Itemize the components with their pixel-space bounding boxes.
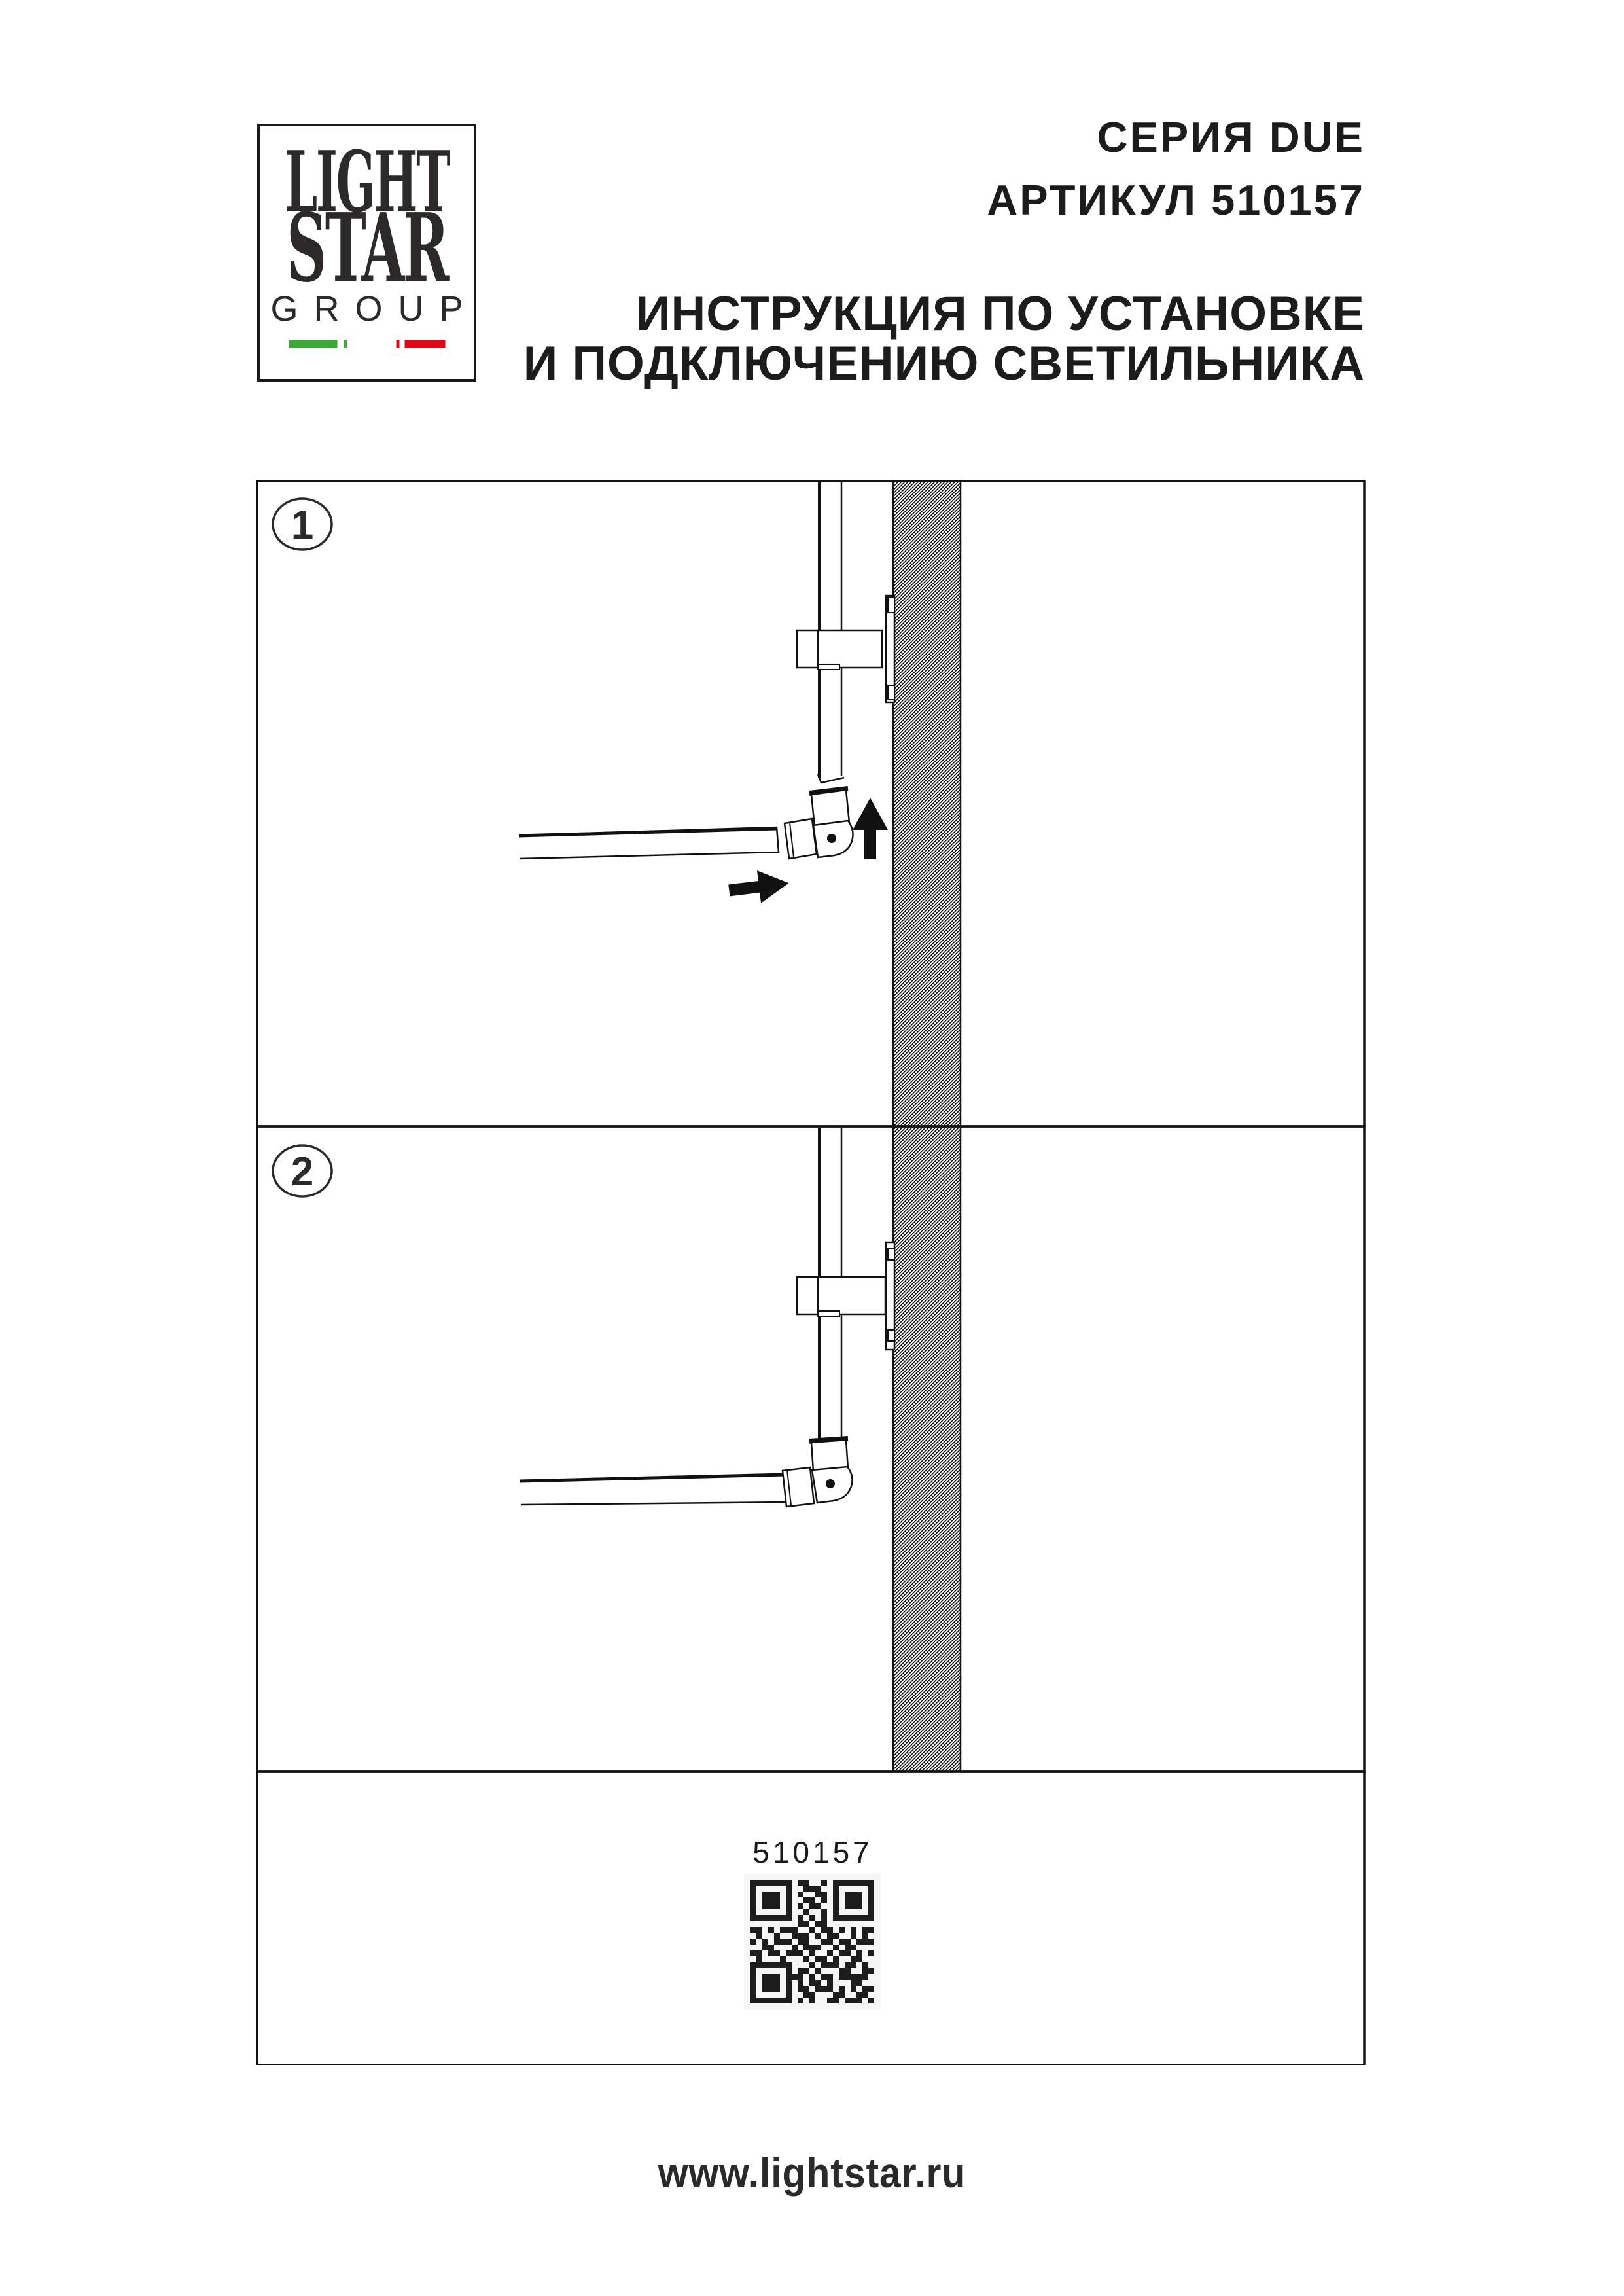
step1-corner-connector (785, 789, 853, 859)
step1-horizontal-rod (519, 827, 779, 859)
instruction-sheet: { "logo": { "line1": "LIGHT", "line2": "… (0, 0, 1624, 2296)
step1-mounting-bracket (797, 630, 882, 670)
website-url: www.lightstar.ru (65, 2149, 1559, 2197)
connector-screw-hole (827, 834, 836, 843)
installation-diagram: 1 (256, 480, 1366, 2065)
arrow-right-icon (727, 867, 790, 906)
logo-group-text: GROUP (255, 291, 478, 327)
lightstar-logo: LIGHT STAR GROUP (257, 124, 476, 382)
step1-badge: 1 (273, 499, 332, 550)
panel-frames (257, 481, 1364, 2065)
step1-diagram: 1 (273, 482, 894, 906)
connector-screw-hole (826, 1479, 835, 1488)
step2-mounting-bracket (797, 1277, 885, 1316)
step1-panel-frame (257, 481, 1364, 1126)
step2-diagram: 2 (273, 1128, 894, 1507)
header: СЕРИЯ DUE АРТИКУЛ 510157 ИНСТРУКЦИЯ ПО У… (523, 106, 1365, 389)
article-title: АРТИКУЛ 510157 (523, 169, 1365, 232)
step2-wall-plate (886, 1242, 894, 1350)
svg-text:1: 1 (291, 503, 313, 548)
instruction-heading-line2: И ПОДКЛЮЧЕНИЮ СВЕТИЛЬНИКА (523, 339, 1365, 389)
italian-flag-bar (289, 340, 445, 348)
arrow-up-icon (853, 798, 888, 859)
instruction-heading: ИНСТРУКЦИЯ ПО УСТАНОВКЕ И ПОДКЛЮЧЕНИЮ СВ… (523, 289, 1365, 389)
logo-star-text: STAR (287, 202, 448, 296)
series-title: СЕРИЯ DUE (523, 106, 1365, 169)
step2-badge: 2 (273, 1145, 332, 1196)
qr-code (744, 1873, 881, 2010)
svg-text:2: 2 (291, 1149, 313, 1194)
step2-panel-frame (257, 1126, 1364, 1772)
instruction-heading-line1: ИНСТРУКЦИЯ ПО УСТАНОВКЕ (523, 289, 1365, 339)
article-code: 510157 (752, 1835, 873, 1869)
step2-corner-connector (783, 1439, 853, 1507)
step2-horizontal-rod (520, 1474, 787, 1505)
step1-wall-plate (886, 596, 894, 702)
